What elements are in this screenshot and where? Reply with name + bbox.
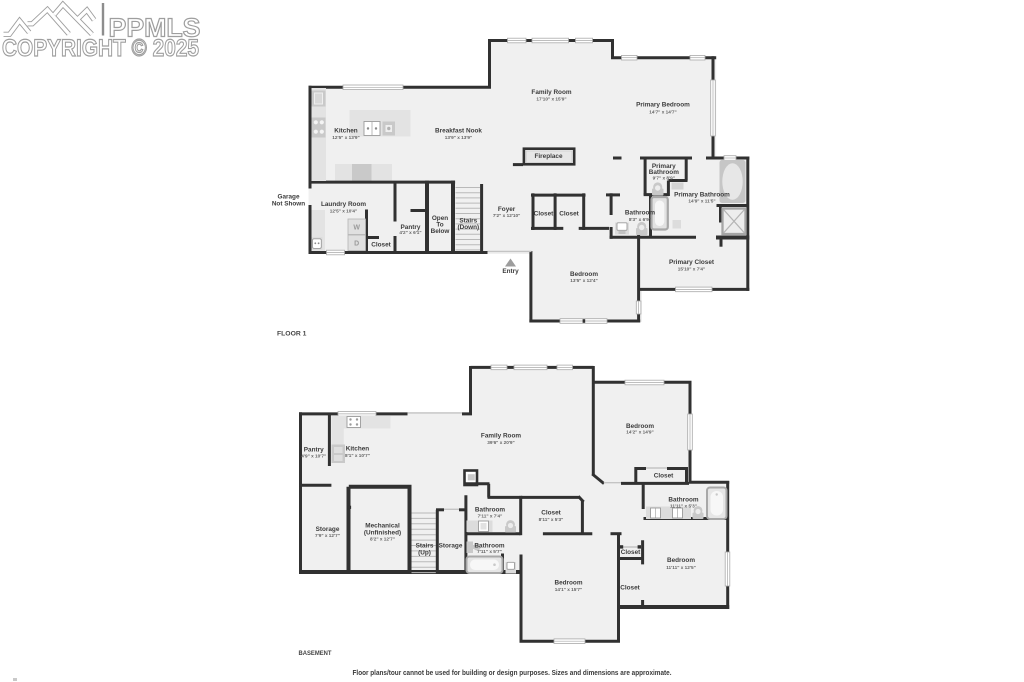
svg-text:11'11" x 12'5": 11'11" x 12'5" (666, 565, 696, 570)
svg-text:(Up): (Up) (418, 549, 431, 556)
svg-text:Bedroom: Bedroom (554, 579, 582, 586)
svg-text:Closet: Closet (654, 473, 674, 480)
svg-text:BASEMENT: BASEMENT (299, 650, 333, 657)
svg-text:4'9" x 10'7": 4'9" x 10'7" (301, 454, 326, 459)
svg-text:Foyer: Foyer (498, 206, 516, 213)
svg-text:12'5" x 10'4": 12'5" x 10'4" (330, 208, 358, 213)
svg-text:Pantry: Pantry (304, 446, 324, 453)
svg-text:Family Room: Family Room (481, 432, 521, 439)
svg-text:COPYRIGHT © 2025: COPYRIGHT © 2025 (2, 35, 199, 62)
svg-text:13'9" x 13'9": 13'9" x 13'9" (445, 135, 473, 140)
svg-text:Bathroom: Bathroom (625, 209, 655, 216)
svg-text:39'6" x 20'9": 39'6" x 20'9" (487, 440, 515, 445)
svg-text:Not Shown: Not Shown (272, 201, 305, 208)
svg-text:Kitchen: Kitchen (346, 446, 370, 453)
svg-text:4'2" x 6'1": 4'2" x 6'1" (399, 230, 421, 235)
svg-text:Closet: Closet (621, 549, 641, 556)
svg-text:Closet: Closet (559, 211, 579, 218)
svg-text:7'11" x 5'7": 7'11" x 5'7" (477, 549, 502, 554)
svg-text:Bedroom: Bedroom (667, 557, 695, 564)
svg-text:14'2" x 14'9": 14'2" x 14'9" (626, 429, 654, 434)
svg-text:(Down): (Down) (457, 224, 479, 231)
svg-text:Floor plans/tour cannot be use: Floor plans/tour cannot be used for buil… (353, 669, 672, 677)
svg-text:FLOOR 1: FLOOR 1 (277, 330, 307, 337)
svg-text:7'9" x 12'7": 7'9" x 12'7" (315, 533, 340, 538)
svg-text:Primary Bedroom: Primary Bedroom (636, 102, 690, 109)
svg-text:Entry: Entry (502, 268, 519, 275)
svg-text:14'1" x 15'7": 14'1" x 15'7" (555, 587, 583, 592)
svg-text:Family Room: Family Room (531, 89, 571, 96)
svg-text:Laundry Room: Laundry Room (321, 201, 366, 208)
svg-text:12'5" x 13'9": 12'5" x 13'9" (332, 135, 360, 140)
svg-text:11'11" x 5'3": 11'11" x 5'3" (670, 503, 697, 508)
svg-text:(Unfinished): (Unfinished) (364, 529, 401, 536)
svg-text:Kitchen: Kitchen (334, 128, 358, 135)
svg-text:Storage: Storage (316, 526, 340, 533)
svg-text:Bathroom: Bathroom (475, 507, 505, 514)
svg-text:14'7" x 14'7": 14'7" x 14'7" (649, 109, 677, 114)
svg-text:Storage: Storage (439, 543, 463, 550)
svg-text:15'10" x 7'4": 15'10" x 7'4" (678, 266, 706, 271)
svg-text:Below: Below (431, 228, 450, 235)
svg-text:17'10" x 15'9": 17'10" x 15'9" (536, 96, 566, 101)
svg-text:8'3" x 6'9": 8'3" x 6'9" (629, 217, 651, 222)
svg-text:Closet: Closet (541, 509, 561, 516)
svg-text:Closet: Closet (371, 241, 391, 248)
svg-text:Bedroom: Bedroom (570, 271, 598, 278)
svg-text:Breakfast Nook: Breakfast Nook (435, 128, 482, 135)
svg-text:D: D (354, 241, 359, 248)
svg-text:13'5" x 12'4": 13'5" x 12'4" (570, 278, 598, 283)
svg-text:14'9" x 11'5": 14'9" x 11'5" (688, 199, 715, 204)
svg-text:8'11" x 5'3": 8'11" x 5'3" (539, 517, 564, 522)
svg-text:8'2" x 12'7": 8'2" x 12'7" (370, 537, 395, 542)
svg-text:Fireplace: Fireplace (534, 153, 563, 160)
svg-text:Closet: Closet (534, 211, 554, 218)
svg-text:Garage: Garage (277, 194, 299, 201)
svg-text:W: W (353, 225, 360, 232)
svg-text:7'11" x 7'4": 7'11" x 7'4" (478, 514, 503, 519)
svg-text:8'1" x 10'7": 8'1" x 10'7" (345, 453, 370, 458)
svg-text:9'7" x 8'9": 9'7" x 8'9" (653, 175, 675, 180)
svg-text:Primary Closet: Primary Closet (669, 259, 715, 266)
svg-text:Closet: Closet (620, 584, 640, 591)
svg-text:7'2" x 12'10": 7'2" x 12'10" (493, 213, 521, 218)
